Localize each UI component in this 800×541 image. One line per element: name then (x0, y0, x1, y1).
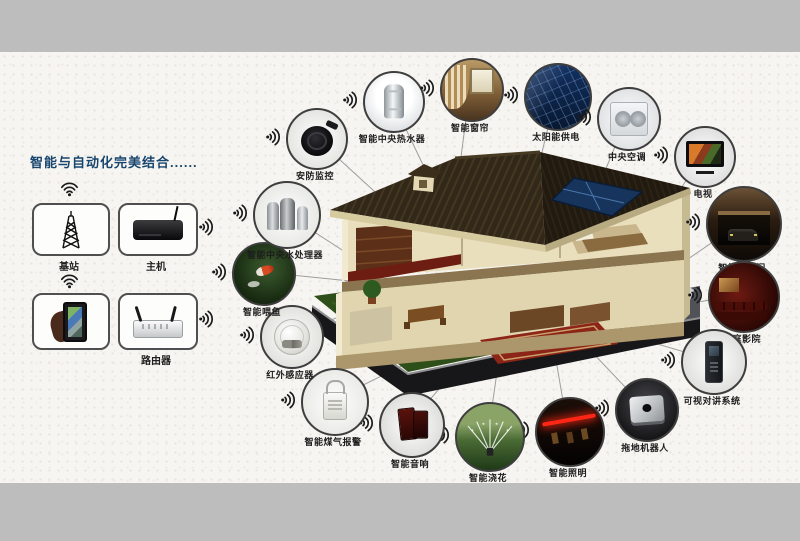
node-central-ac: 中央空调 (597, 87, 657, 147)
host-card (118, 203, 198, 256)
wifi-waves-icon (687, 284, 704, 306)
bottom-gray-band (0, 483, 800, 541)
router-card (118, 293, 198, 350)
node-label: 红外感应器 (266, 368, 314, 381)
node-label: 智能浇花 (469, 471, 507, 484)
node-label: 智能喂鱼 (243, 305, 281, 318)
smartphone-hand-icon (49, 301, 93, 343)
curtain-icon (440, 58, 504, 122)
node-water-heater: 智能中央热水器 (363, 71, 421, 129)
set-top-box-icon (133, 220, 183, 240)
water-heater-icon (363, 71, 425, 133)
host-label: 主机 (146, 258, 166, 273)
node-label: 智能煤气报警 (304, 435, 361, 448)
page-title: 智能与自动化完美结合...... (30, 152, 198, 171)
node-garage-door: 智能车库门 (706, 186, 778, 258)
node-home-theater: 家庭影院 (708, 261, 776, 329)
wifi-waves-icon (280, 389, 297, 411)
base-station-card (32, 203, 110, 256)
top-gray-band (0, 0, 800, 52)
wifi-waves-icon (653, 144, 670, 166)
mopping-robot-icon (615, 378, 679, 442)
signal-tower-icon (34, 205, 108, 254)
garage-door-icon (706, 186, 782, 262)
node-curtain: 智能窗帘 (440, 58, 500, 118)
node-label: 可视对讲系统 (683, 394, 740, 407)
node-label: 智能中央水处理器 (247, 248, 323, 261)
home-theater-icon (708, 261, 780, 333)
wifi-waves-icon (59, 181, 81, 198)
node-label: 中央空调 (608, 150, 646, 163)
wifi-waves-icon (232, 202, 249, 224)
wifi-waves-icon (265, 126, 282, 148)
node-label: 安防监控 (296, 169, 334, 182)
wifi-waves-icon (342, 89, 359, 111)
smartphone-card (32, 293, 110, 350)
wifi-waves-icon (239, 324, 256, 346)
node-label: 太阳能供电 (532, 130, 580, 143)
base-station-label: 基站 (59, 258, 79, 273)
water-processor-icon (253, 181, 321, 249)
node-water-processor: 智能中央水处理器 (253, 181, 317, 245)
sprinkler-icon (455, 402, 525, 472)
router-icon (133, 320, 183, 338)
tv-icon (674, 126, 736, 188)
node-label: 智能照明 (549, 466, 587, 479)
air-conditioner-icon (597, 87, 661, 151)
node-video-intercom: 可视对讲系统 (681, 329, 743, 391)
node-speaker: 智能音响 (379, 392, 441, 454)
wifi-waves-icon (198, 308, 215, 330)
node-watering: 智能浇花 (455, 402, 521, 468)
wifi-waves-icon (685, 211, 702, 233)
node-label: 拖地机器人 (621, 441, 669, 454)
poster-canvas: 智能与自动化完美结合...... 基站 主机 路由器 (0, 0, 800, 541)
wifi-waves-icon (211, 261, 228, 283)
security-camera-icon (286, 108, 348, 170)
intercom-icon (681, 329, 747, 395)
wifi-waves-icon (660, 349, 677, 371)
node-label: 智能中央热水器 (359, 132, 426, 145)
wifi-waves-icon (59, 273, 81, 290)
router-label: 路由器 (141, 352, 171, 367)
wifi-waves-icon (419, 77, 436, 99)
wifi-waves-icon (198, 216, 215, 238)
node-label: 智能音响 (391, 457, 429, 470)
wifi-waves-icon (576, 106, 593, 128)
node-mopping-robot: 拖地机器人 (615, 378, 675, 438)
lighting-icon (535, 397, 605, 467)
node-tv: 电视 (674, 126, 732, 184)
node-lighting: 智能照明 (535, 397, 601, 463)
node-security-monitor: 安防监控 (286, 108, 344, 166)
wifi-waves-icon (503, 84, 520, 106)
speaker-icon (379, 392, 445, 458)
node-label: 智能窗帘 (451, 121, 489, 134)
